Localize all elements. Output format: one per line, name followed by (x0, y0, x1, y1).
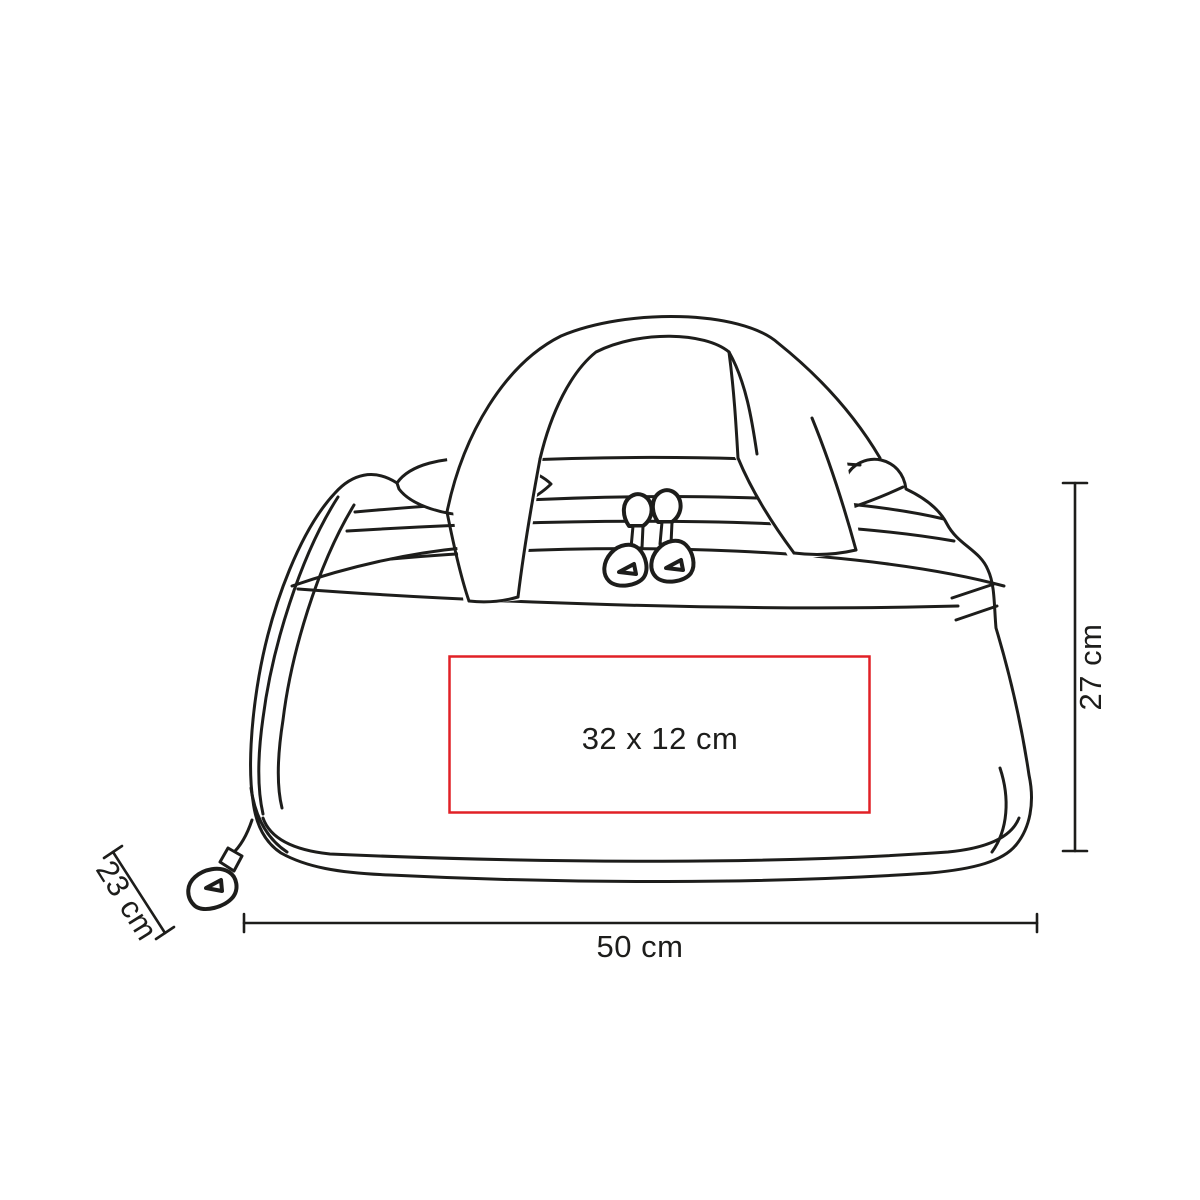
width-dimension: 50 cm (244, 914, 1037, 964)
zipper-pull-tab-left (604, 545, 646, 586)
handle-arch-inner (540, 336, 729, 459)
bottom-seam-line (263, 818, 1019, 861)
print-area-label: 32 x 12 cm (582, 721, 739, 756)
side-gusset-straps (259, 497, 354, 814)
zipper-slider-right (653, 490, 681, 522)
depth-dimension-label: 23 cm (89, 854, 165, 946)
zipper-pull-tab-right (651, 541, 693, 582)
print-area: 32 x 12 cm (450, 657, 870, 813)
right-corner-fold (992, 768, 1006, 852)
height-dimension: 27 cm (1063, 483, 1108, 851)
side-strap-stripe (956, 606, 997, 620)
front-panel-top-seam (298, 589, 958, 608)
side-strap-stripe (952, 584, 994, 598)
side-zipper-pull (188, 820, 252, 909)
zipper-pulls (604, 490, 693, 585)
zipper-slider-left (624, 494, 652, 526)
width-dimension-label: 50 cm (597, 929, 684, 964)
gusset-strap-line (278, 505, 354, 808)
height-dimension-label: 27 cm (1073, 624, 1108, 711)
duffel-bag-drawing (188, 317, 1031, 910)
product-spec-sheet: 32 x 12 cm 27 cm 50 cm 23 cm (0, 0, 1200, 1200)
depth-dimension: 23 cm (89, 846, 174, 947)
top-panel-seam-line (347, 521, 954, 541)
left-strap-fill (446, 443, 545, 606)
right-end-cap-seam (850, 487, 903, 508)
right-strap-fill (730, 432, 862, 560)
side-zipper-cord (232, 820, 252, 854)
spec-drawing-svg: 32 x 12 cm 27 cm 50 cm 23 cm (0, 0, 1200, 1200)
gusset-strap-line (259, 497, 338, 814)
